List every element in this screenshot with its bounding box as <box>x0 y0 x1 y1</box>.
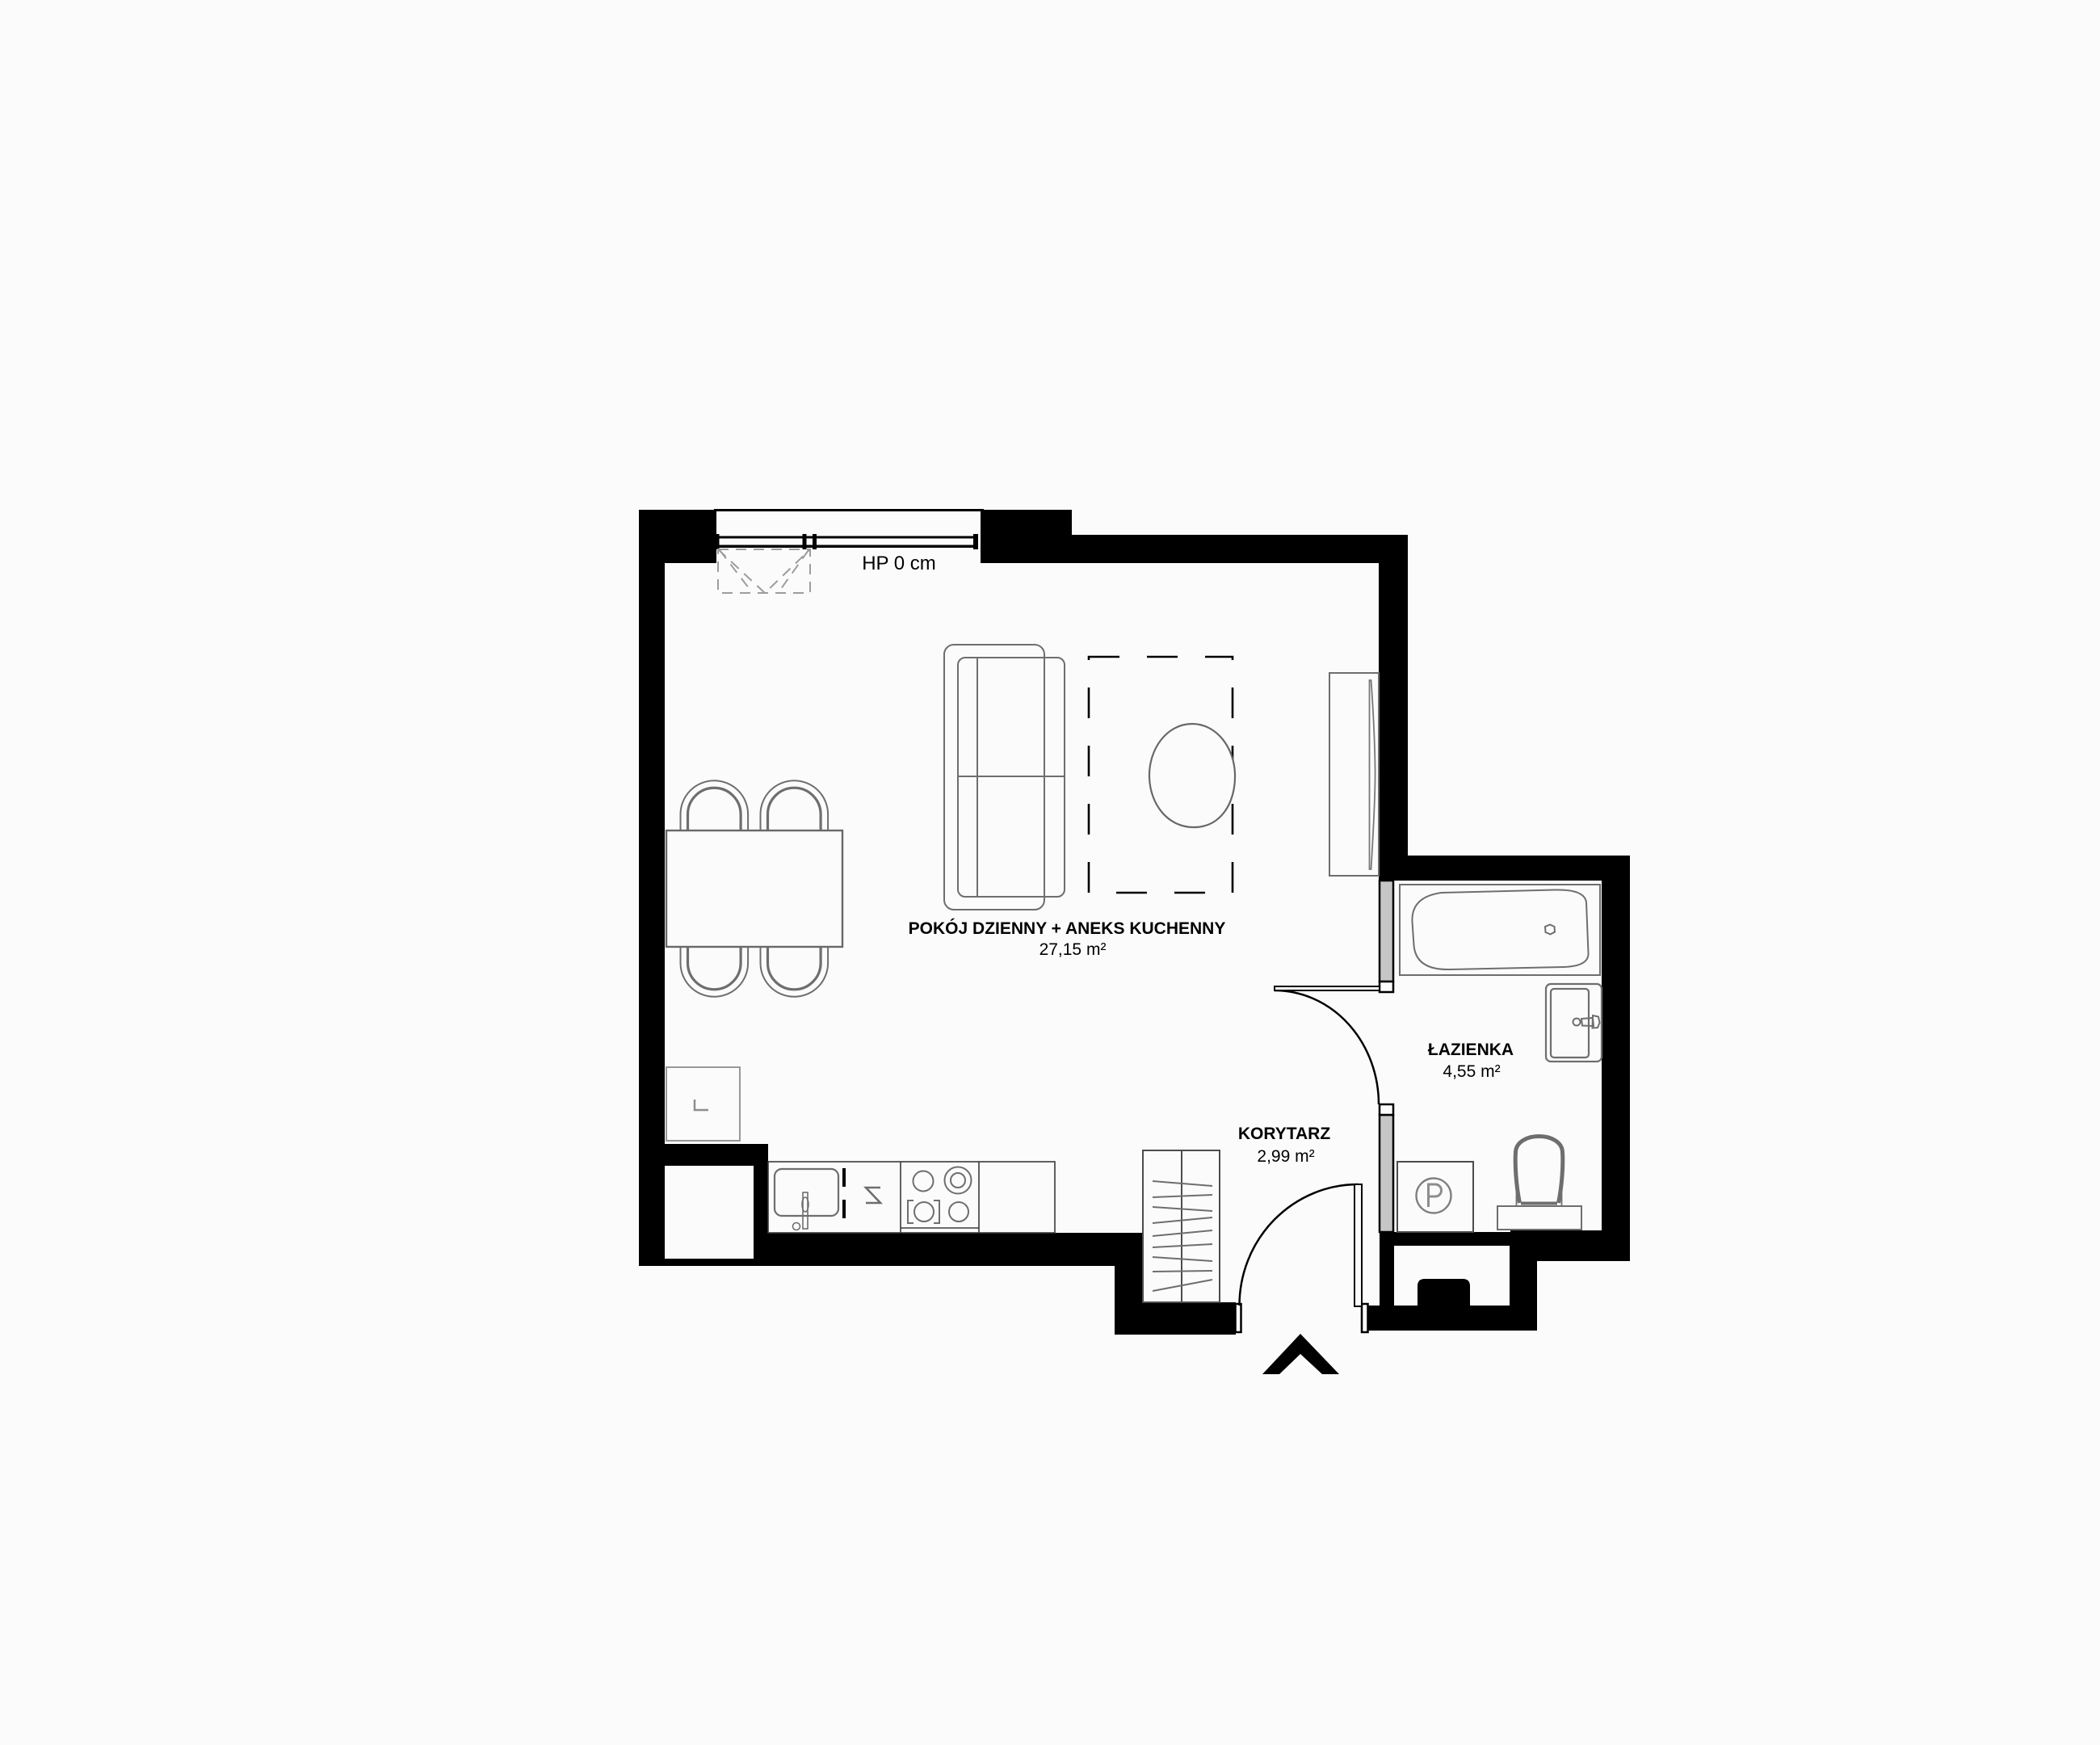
svg-text:POKÓJ DZIENNY + ANEKS KUCHENNY: POKÓJ DZIENNY + ANEKS KUCHENNY <box>909 919 1226 938</box>
svg-text:ŁAZIENKA: ŁAZIENKA <box>1428 1041 1514 1059</box>
svg-text:27,15 m²: 27,15 m² <box>1039 940 1107 959</box>
svg-text:2,99 m²: 2,99 m² <box>1257 1147 1314 1166</box>
svg-text:HP 0 cm: HP 0 cm <box>862 553 936 574</box>
svg-text:4,55 m²: 4,55 m² <box>1443 1062 1500 1081</box>
svg-text:KORYTARZ: KORYTARZ <box>1238 1125 1330 1143</box>
